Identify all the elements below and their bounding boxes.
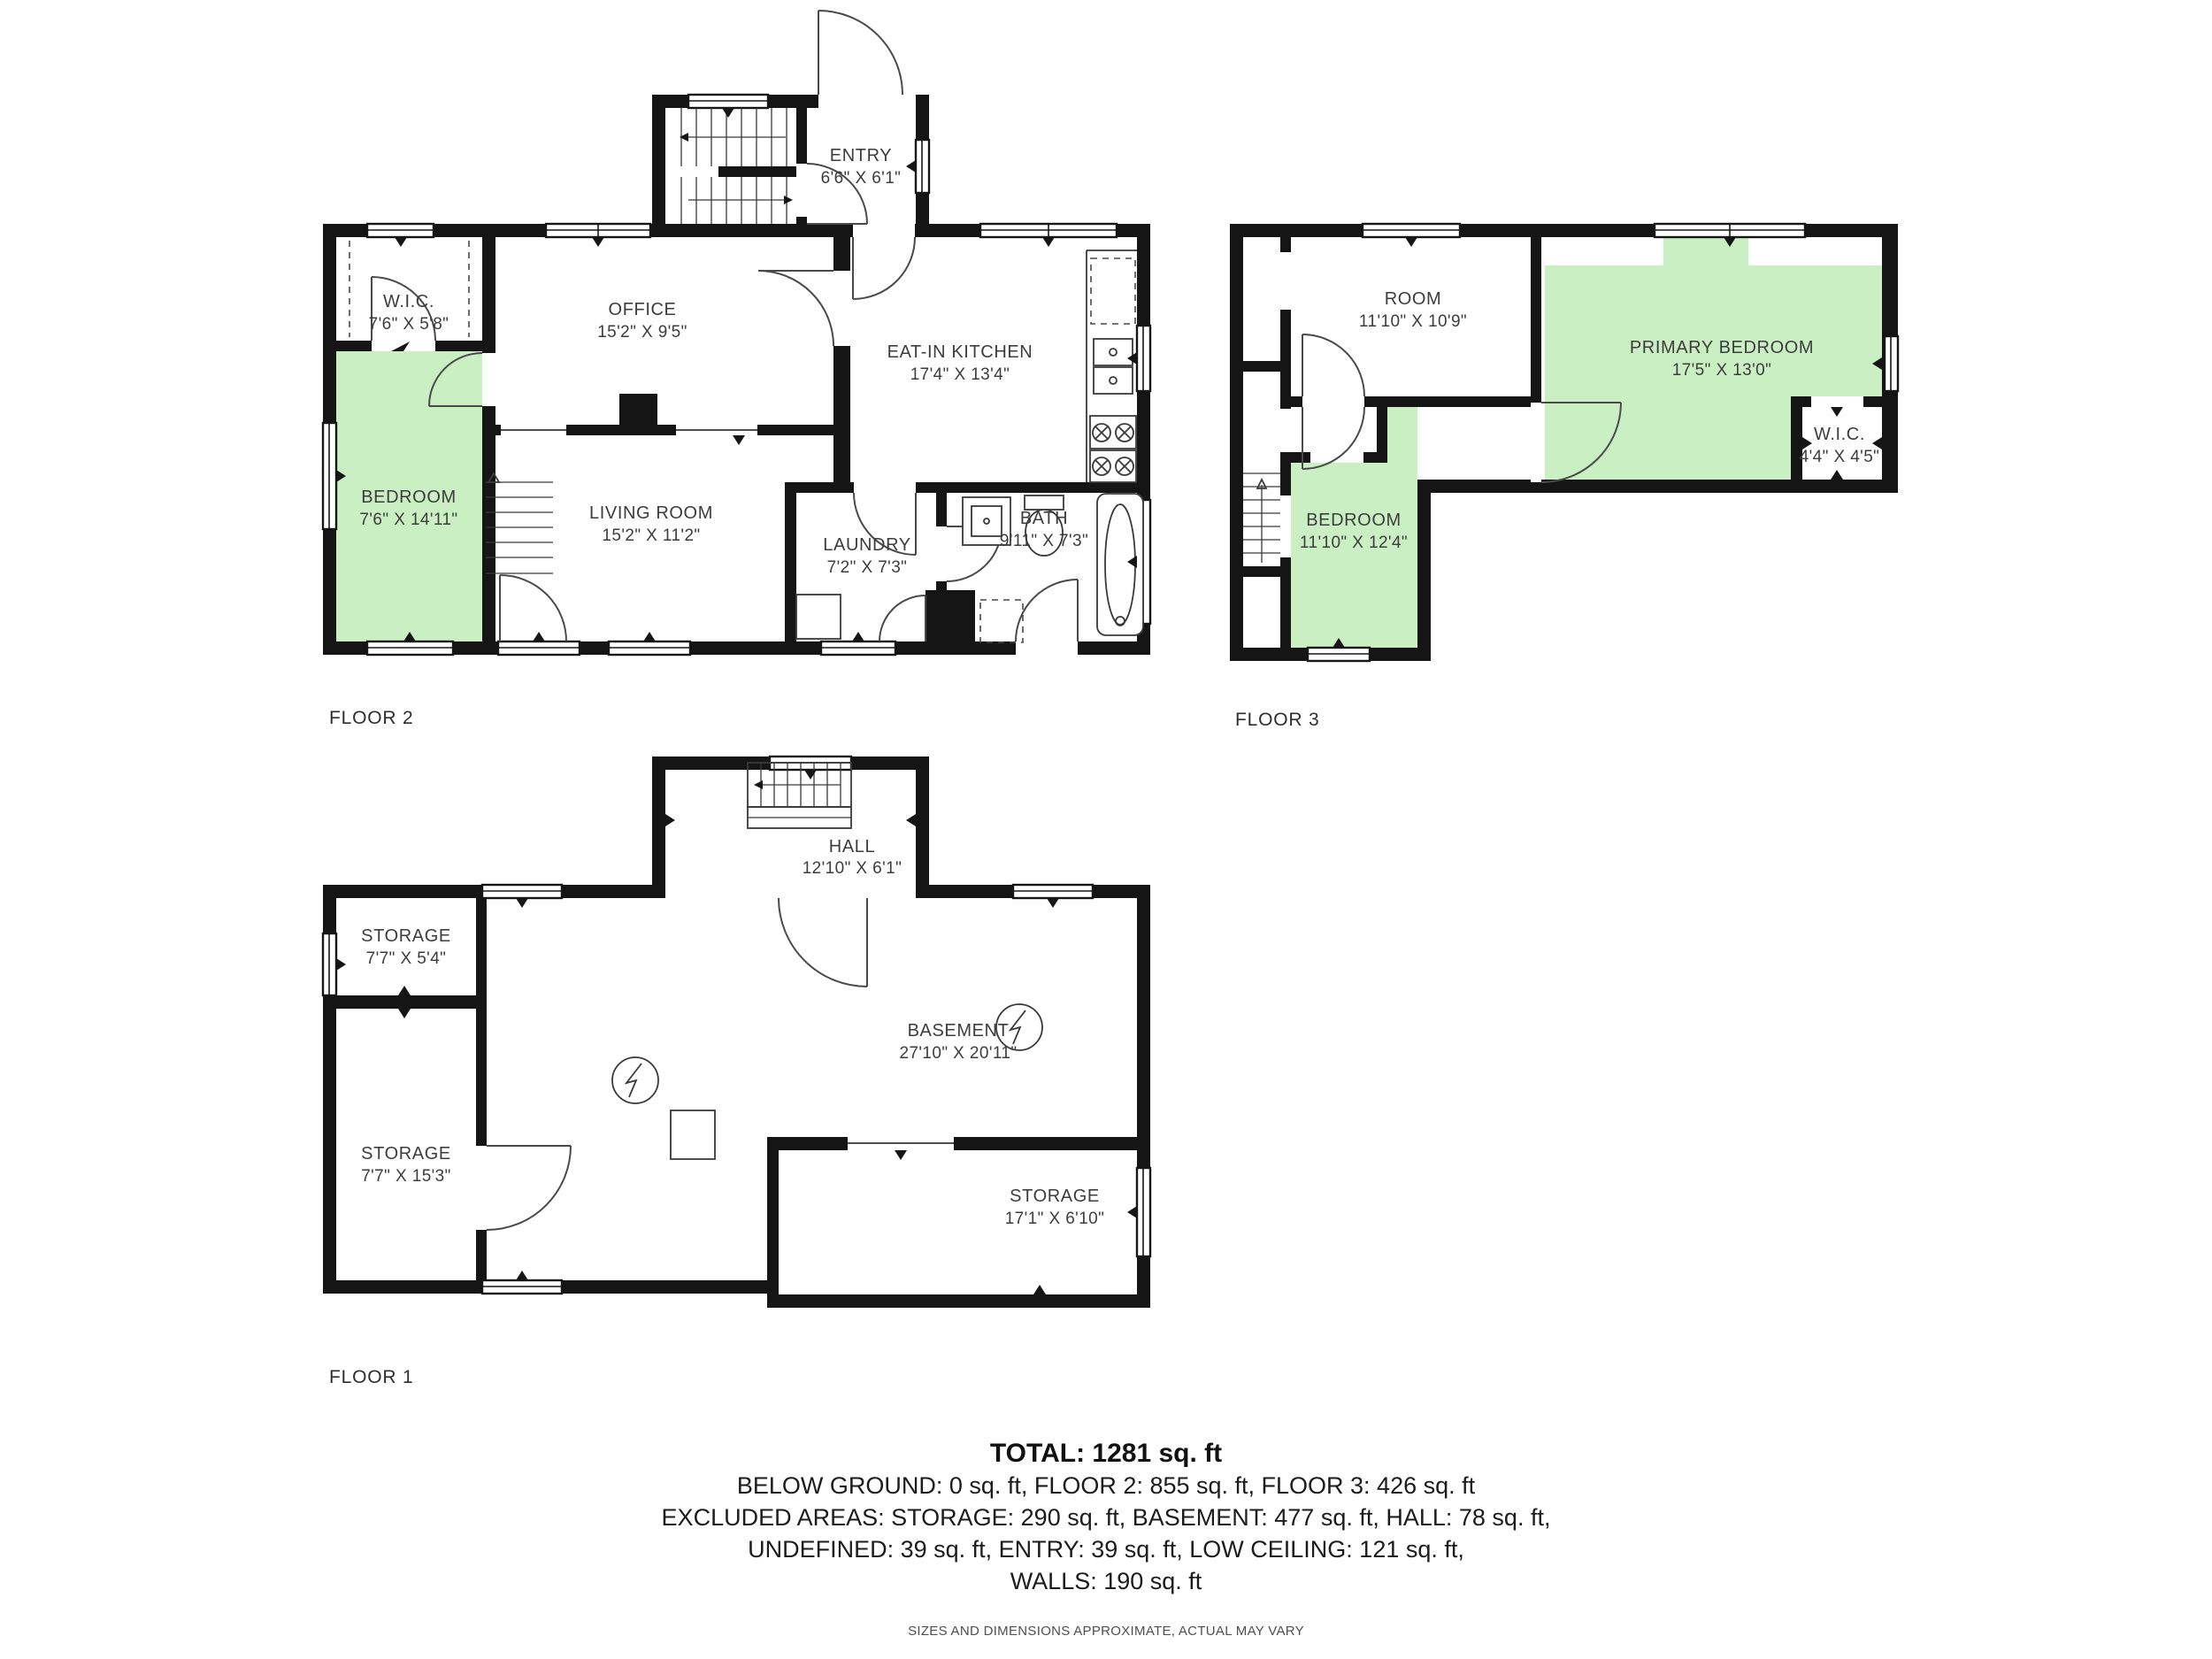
summary-line-undefined: UNDEFINED: 39 sq. ft, ENTRY: 39 sq. ft, … bbox=[748, 1536, 1464, 1563]
summary-disclaimer: SIZES AND DIMENSIONS APPROXIMATE, ACTUAL… bbox=[908, 1624, 1304, 1639]
room-label-basement: BASEMENT bbox=[908, 1021, 1010, 1041]
room-label-primary-bedroom: PRIMARY BEDROOM bbox=[1630, 338, 1814, 357]
room-label-bedroom-f2: BEDROOM bbox=[361, 488, 457, 507]
room-dims-wic-f3: 4'4" X 4'5" bbox=[1800, 448, 1880, 466]
floorplan-page: { "colors": { "wall": "#151515", "highli… bbox=[0, 0, 2212, 1659]
room-dims-bath: 9'11" X 7'3" bbox=[1000, 532, 1088, 550]
room-label-bath: BATH bbox=[1020, 509, 1068, 528]
floor-1-plan: HALL 12'10" X 6'1" STORAGE 7'7" X 5'4" B… bbox=[323, 757, 1150, 1387]
room-label-entry: ENTRY bbox=[830, 146, 892, 165]
floor-2-plan: ENTRY 6'6" X 6'1" W.I.C. 7'6" X 5'8" OFF… bbox=[323, 11, 1150, 728]
room-dims-bedroom-f2: 7'6" X 14'11" bbox=[359, 511, 457, 529]
room-label-hall: HALL bbox=[829, 837, 875, 856]
room-dims-entry: 6'6" X 6'1" bbox=[821, 169, 902, 188]
floor-3-plan: ROOM 11'10" X 10'9" PRIMARY BEDROOM 17'5… bbox=[1230, 224, 1898, 730]
room-dims-room-f3: 11'10" X 10'9" bbox=[1359, 312, 1467, 331]
room-label-laundry: LAUNDRY bbox=[823, 535, 910, 555]
room-dims-living: 15'2" X 11'2" bbox=[602, 526, 700, 545]
room-dims-kitchen: 17'4" X 13'4" bbox=[910, 365, 1010, 384]
room-label-storage-right: STORAGE bbox=[1010, 1187, 1100, 1206]
room-dims-basement: 27'10" X 20'11" bbox=[899, 1044, 1017, 1063]
room-dims-laundry: 7'2" X 7'3" bbox=[827, 558, 908, 577]
room-dims-hall: 12'10" X 6'1" bbox=[803, 859, 902, 878]
room-label-office: OFFICE bbox=[609, 300, 677, 319]
floorplan-canvas: ENTRY 6'6" X 6'1" W.I.C. 7'6" X 5'8" OFF… bbox=[0, 0, 2212, 1659]
room-dims-bedroom-f3: 11'10" X 12'4" bbox=[1300, 534, 1408, 552]
room-dims-storage-right: 17'1" X 6'10" bbox=[1005, 1210, 1105, 1228]
floor-2-label: FLOOR 2 bbox=[329, 708, 413, 728]
room-dims-office: 15'2" X 9'5" bbox=[597, 323, 687, 342]
room-label-storage-left: STORAGE bbox=[361, 1144, 451, 1164]
room-dims-storage-top: 7'7" X 5'4" bbox=[366, 949, 447, 968]
summary-line-excluded: EXCLUDED AREAS: STORAGE: 290 sq. ft, BAS… bbox=[662, 1504, 1551, 1531]
floor-3-label: FLOOR 3 bbox=[1235, 710, 1319, 730]
summary-total: TOTAL: 1281 sq. ft bbox=[990, 1439, 1222, 1468]
room-label-wic-f3: W.I.C. bbox=[1814, 425, 1865, 444]
room-dims-wic-f2: 7'6" X 5'8" bbox=[369, 315, 449, 334]
room-label-living: LIVING ROOM bbox=[589, 503, 713, 523]
summary-line-floors: BELOW GROUND: 0 sq. ft, FLOOR 2: 855 sq.… bbox=[737, 1472, 1476, 1499]
floor-1-label: FLOOR 1 bbox=[329, 1367, 413, 1387]
room-label-kitchen: EAT-IN KITCHEN bbox=[887, 342, 1033, 362]
room-label-bedroom-f3: BEDROOM bbox=[1306, 511, 1402, 530]
room-label-room-f3: ROOM bbox=[1385, 289, 1442, 309]
room-label-storage-top: STORAGE bbox=[361, 926, 451, 946]
summary-block: TOTAL: 1281 sq. ft BELOW GROUND: 0 sq. f… bbox=[662, 1439, 1551, 1639]
room-dims-storage-left: 7'7" X 15'3" bbox=[361, 1167, 451, 1186]
room-label-wic-f2: W.I.C. bbox=[383, 292, 434, 311]
room-dims-primary-bedroom: 17'5" X 13'0" bbox=[1672, 361, 1772, 380]
summary-line-walls: WALLS: 190 sq. ft bbox=[1010, 1568, 1202, 1594]
